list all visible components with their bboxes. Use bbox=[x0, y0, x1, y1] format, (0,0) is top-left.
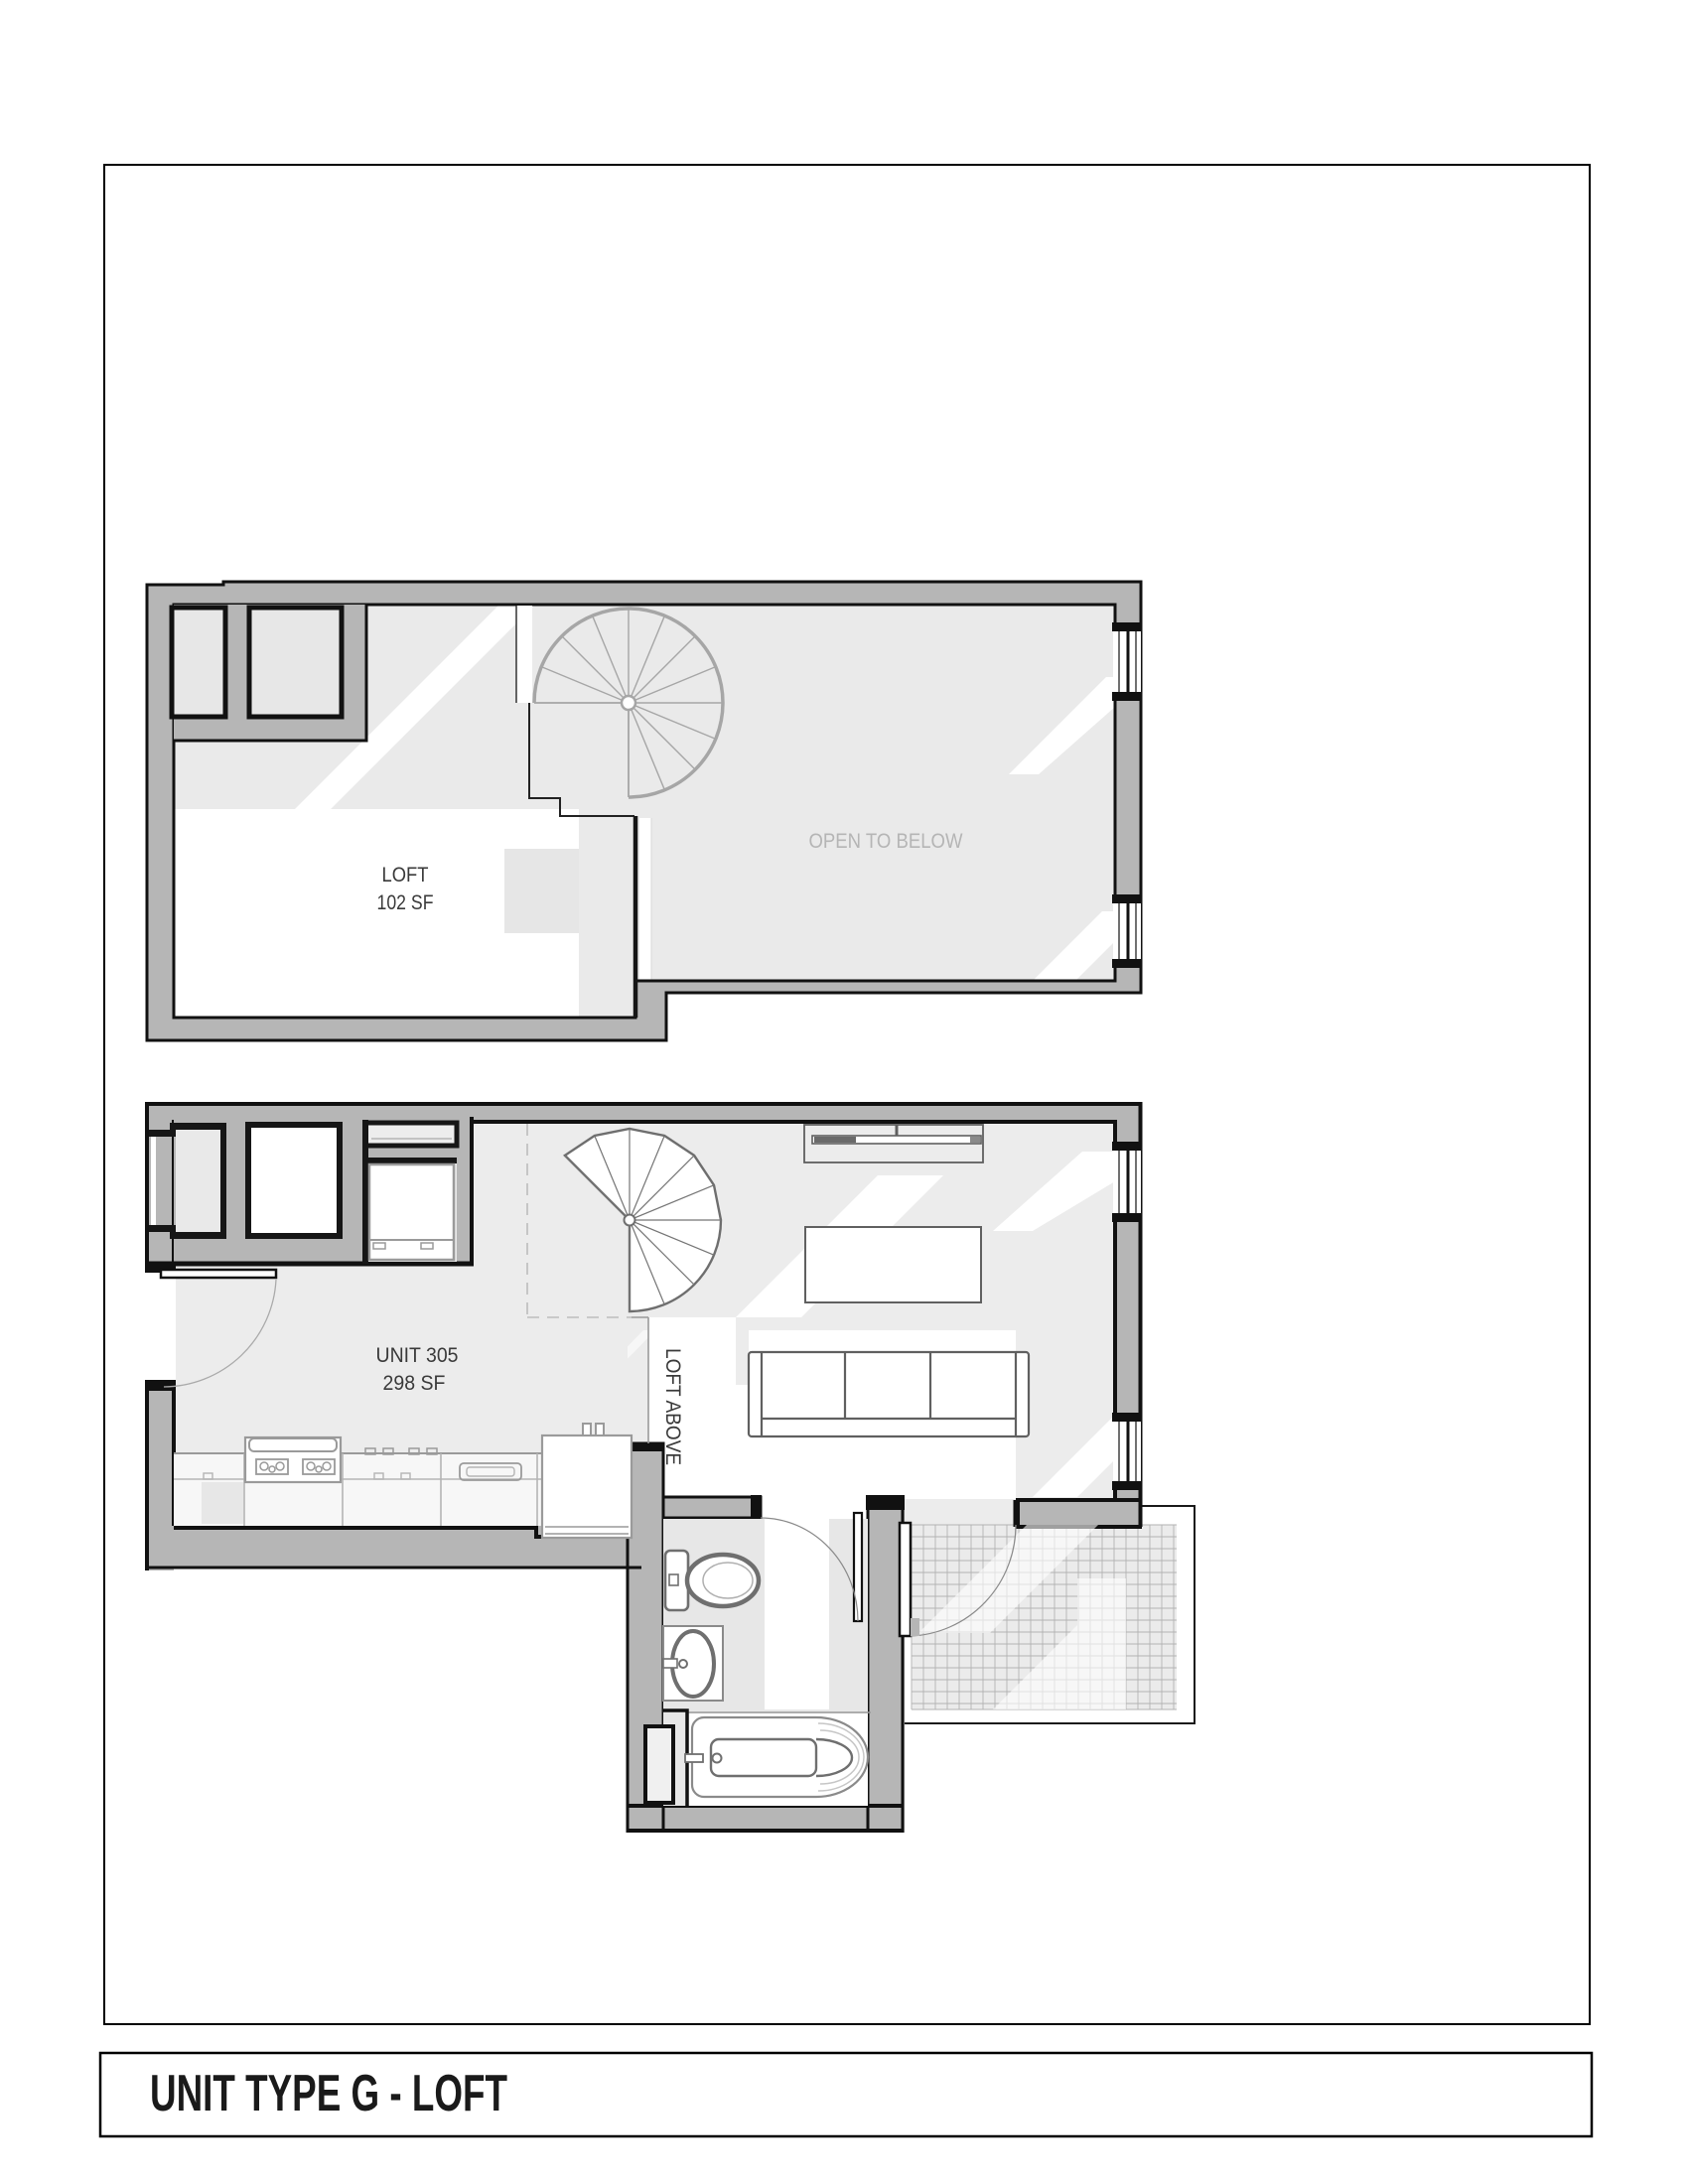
svg-text:UNIT 305: UNIT 305 bbox=[376, 1344, 459, 1367]
svg-text:UNIT TYPE G - LOFT: UNIT TYPE G - LOFT bbox=[150, 2065, 507, 2122]
svg-text:102 SF: 102 SF bbox=[377, 891, 434, 914]
svg-text:LOFT ABOVE: LOFT ABOVE bbox=[661, 1348, 684, 1465]
svg-text:298 SF: 298 SF bbox=[383, 1372, 446, 1395]
svg-text:OPEN TO BELOW: OPEN TO BELOW bbox=[809, 830, 963, 853]
svg-text:LOFT: LOFT bbox=[382, 864, 429, 887]
